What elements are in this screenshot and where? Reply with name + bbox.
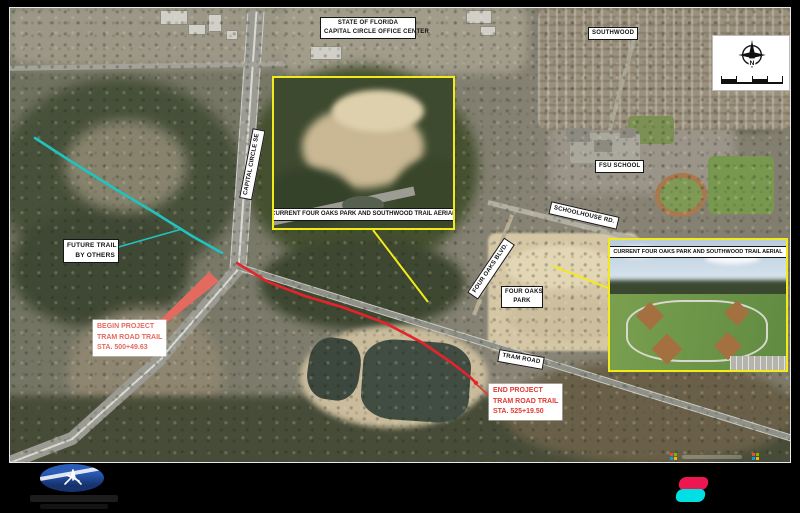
begin-line: TRAM ROAD TRAIL [97,333,162,344]
logo-wordmark [30,495,118,502]
map-attribution-logo [752,453,759,460]
terrain-patch [10,8,284,68]
building [188,24,206,35]
aerial-map: CURRENT FOUR OAKS PARK AND SOUTHWOOD TRA… [10,8,790,462]
state-title-line: CAPITAL CIRCLE OFFICE CENTER [324,28,412,37]
end-line: TRAM ROAD TRAIL [493,397,558,408]
building [310,46,342,60]
building [480,26,496,36]
inset-caption-line: SOUTHWOOD TRAIL AERIAL [706,249,782,255]
building [226,30,238,40]
inset-caption-line: SOUTHWOOD TRAIL AERIAL [373,211,456,217]
state-title-label: STATE OF FLORIDA CAPITAL CIRCLE OFFICE C… [320,17,416,39]
inset-terrain [332,90,424,132]
building [594,140,612,152]
end-line: END PROJECT [493,386,558,397]
building [208,14,222,32]
building [566,128,590,142]
inset-park-aerial: CURRENT FOUR OAKS PARK AND SOUTHWOOD TRA… [608,238,788,372]
agency-logo-ellipse [40,464,104,492]
inset-caption-line: CURRENT FOUR OAKS PARK AND [272,211,371,217]
terrain-patch [65,120,187,212]
end-line: STA. 525+19.50 [493,407,558,418]
inset-parking [730,356,786,371]
inset-caption: CURRENT FOUR OAKS PARK AND SOUTHWOOD TRA… [608,246,787,258]
four-oaks-park-label: FOUR OAKS PARK [501,286,543,308]
begin-project-callout: BEGIN PROJECT TRAM ROAD TRAIL STA. 500+4… [93,320,166,356]
inset-caption: CURRENT FOUR OAKS PARK AND SOUTHWOOD TRA… [272,208,455,221]
building [620,128,636,138]
four-oaks-park-line: FOUR OAKS [505,288,539,297]
building [466,10,492,24]
end-project-callout: END PROJECT TRAM ROAD TRAIL STA. 525+19.… [489,384,562,420]
brand-bar-cyan [675,489,706,502]
agency-logo [30,463,122,509]
map-attribution-text [682,455,742,459]
building [160,10,188,25]
north-letter: N [750,60,755,67]
begin-line: STA. 500+49.63 [97,343,162,354]
state-title-line: STATE OF FLORIDA [324,19,412,28]
brand-mark [676,477,720,504]
logo-figure-icon [62,468,84,488]
inset-caption-line: CURRENT FOUR OAKS PARK AND [613,249,704,255]
sports-field [708,156,774,214]
pond [359,337,472,424]
tram-road-label: TRAM ROAD [497,349,545,370]
four-oaks-park-line: PARK [505,297,539,306]
terrain-patch [505,246,617,288]
begin-line: BEGIN PROJECT [97,322,162,333]
future-trail-line-text: BY OTHERS [67,251,115,261]
inset-construction-aerial: CURRENT FOUR OAKS PARK AND SOUTHWOOD TRA… [272,76,455,230]
map-sheet: CURRENT FOUR OAKS PARK AND SOUTHWOOD TRA… [0,0,800,513]
logo-tagline [40,504,108,509]
north-arrow-scale-box: N [712,35,790,91]
scale-bar [721,73,783,84]
southwood-label: SOUTHWOOD [588,27,638,40]
north-arrow-icon: N [735,38,769,72]
fsu-school-label: FSU SCHOOL [595,160,644,173]
map-attribution-logo [670,453,677,460]
future-trail-line-text: FUTURE TRAIL [67,241,115,251]
future-trail-callout: FUTURE TRAIL BY OTHERS [63,239,119,263]
